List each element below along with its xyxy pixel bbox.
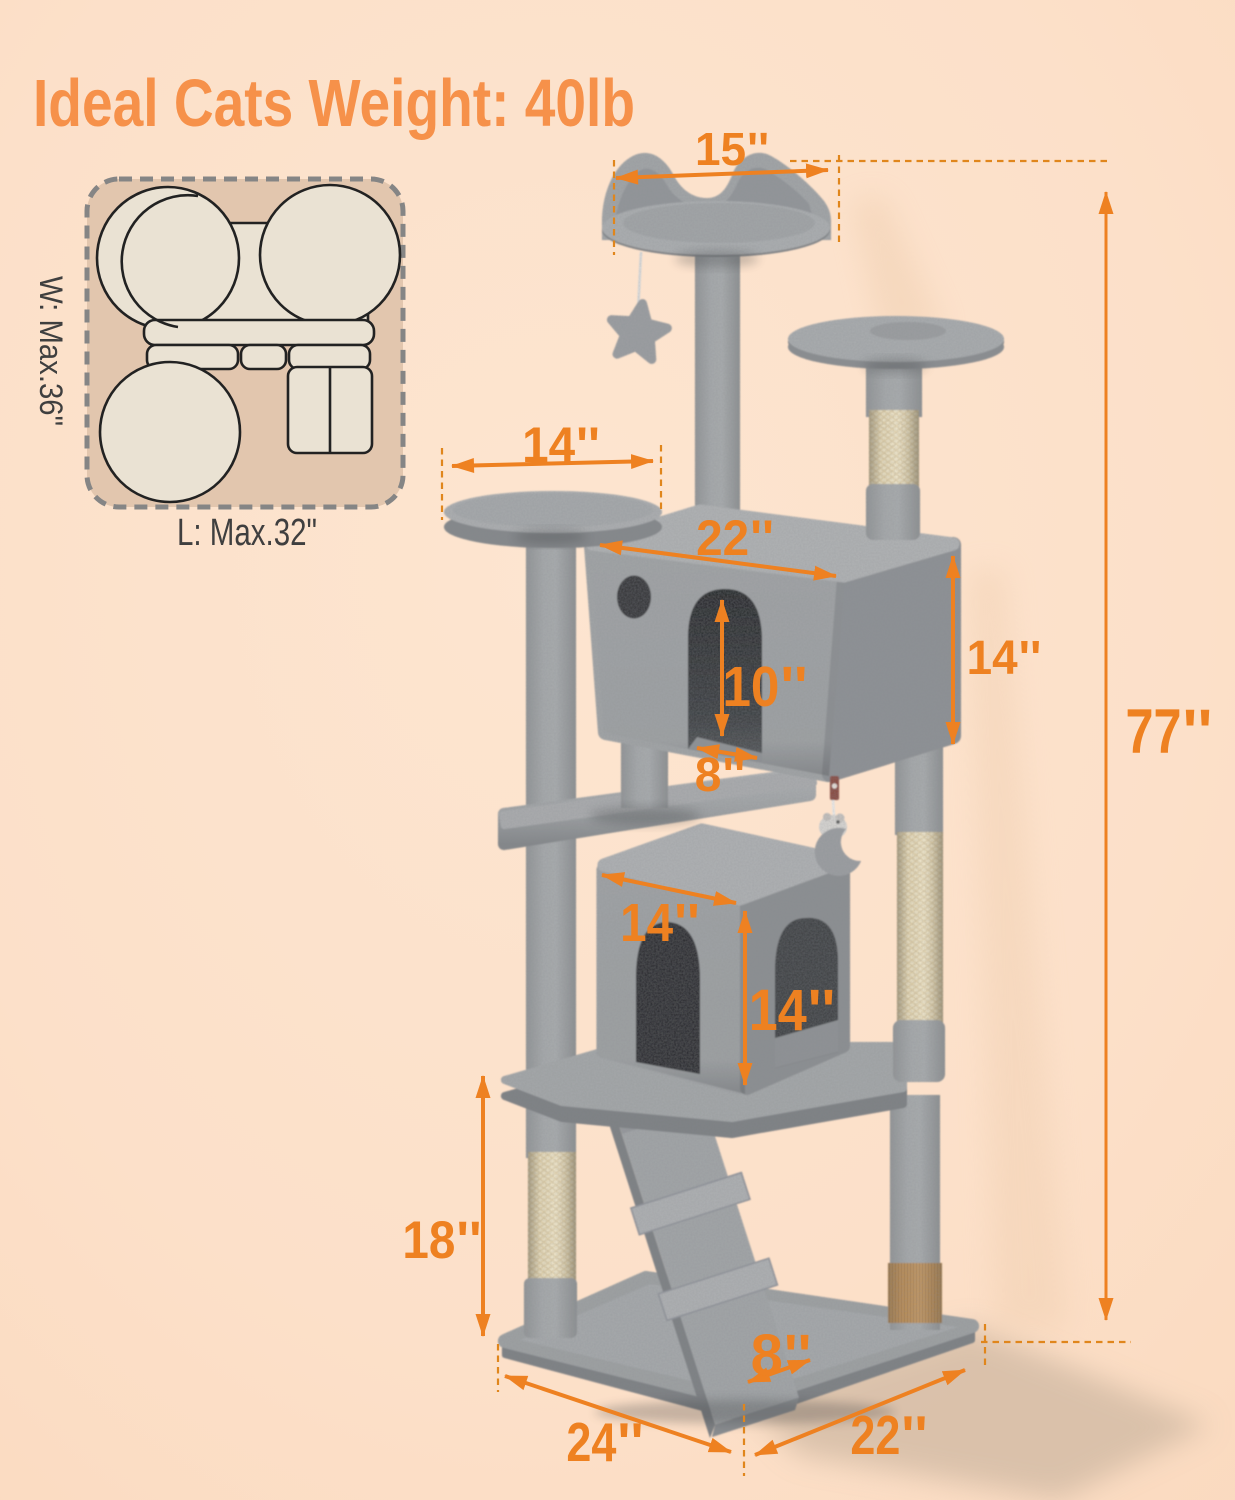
- svg-text:14'': 14'': [749, 978, 836, 1043]
- svg-text:10'': 10'': [722, 655, 807, 719]
- svg-text:22'': 22'': [850, 1404, 927, 1466]
- svg-text:L: Max.32": L: Max.32": [177, 512, 317, 554]
- svg-text:24'': 24'': [566, 1411, 643, 1473]
- svg-text:8'': 8'': [695, 749, 746, 802]
- svg-text:77'': 77'': [1126, 697, 1213, 767]
- svg-text:14'': 14'': [967, 632, 1042, 685]
- svg-text:14'': 14'': [522, 417, 600, 473]
- svg-text:14'': 14'': [620, 893, 700, 953]
- svg-text:Ideal Cats Weight: 40lb: Ideal Cats Weight: 40lb: [33, 66, 635, 141]
- svg-text:W: Max.36": W: Max.36": [33, 276, 69, 426]
- svg-text:18'': 18'': [402, 1211, 481, 1270]
- svg-text:8'': 8'': [751, 1323, 812, 1388]
- svg-text:22'': 22'': [696, 510, 774, 566]
- svg-text:15'': 15'': [695, 123, 769, 175]
